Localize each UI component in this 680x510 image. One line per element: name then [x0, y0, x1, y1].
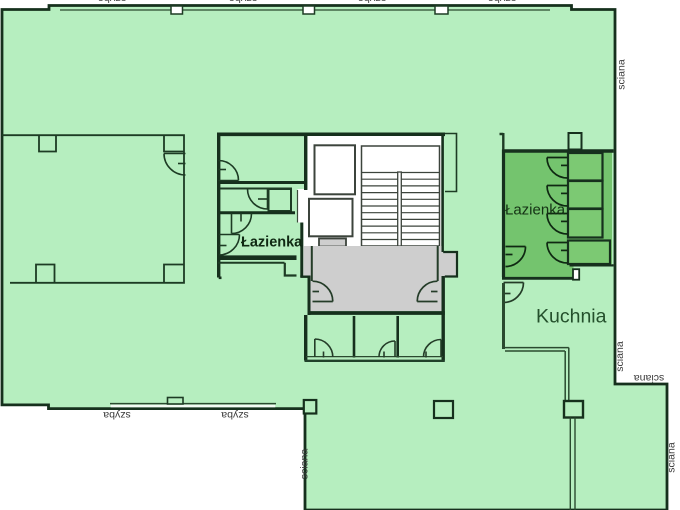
svg-text:Łazienka: Łazienka [241, 235, 303, 251]
svg-text:Łazienka: Łazienka [505, 202, 566, 219]
svg-text:szyba: szyba [97, 0, 127, 4]
svg-text:szyba: szyba [103, 409, 131, 421]
svg-text:szyba: szyba [357, 0, 387, 4]
svg-text:szyba: szyba [221, 409, 249, 421]
svg-text:sciana: sciana [634, 372, 665, 384]
svg-text:Kuchnia: Kuchnia [536, 306, 607, 328]
svg-text:szyba: szyba [487, 0, 517, 4]
svg-text:sciana: sciana [614, 341, 626, 372]
svg-text:sciana: sciana [299, 449, 311, 480]
svg-text:szyba: szyba [228, 0, 258, 4]
svg-text:sciana: sciana [666, 442, 678, 473]
svg-text:sciana: sciana [616, 59, 628, 90]
